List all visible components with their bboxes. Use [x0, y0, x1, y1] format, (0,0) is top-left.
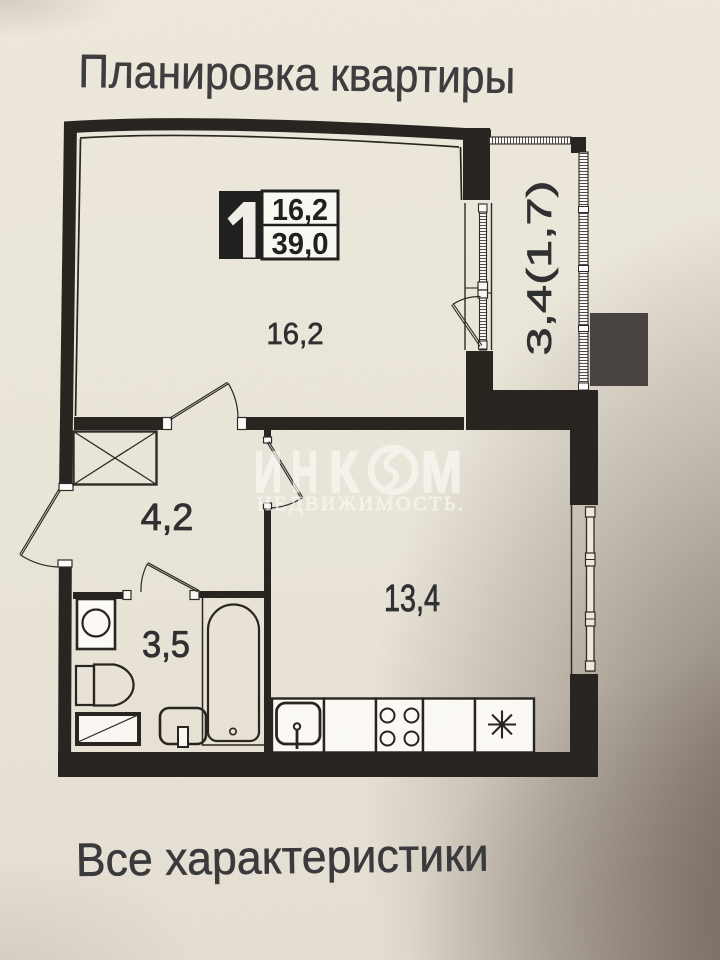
svg-text:Все характеристики: Все характеристики: [75, 828, 489, 886]
